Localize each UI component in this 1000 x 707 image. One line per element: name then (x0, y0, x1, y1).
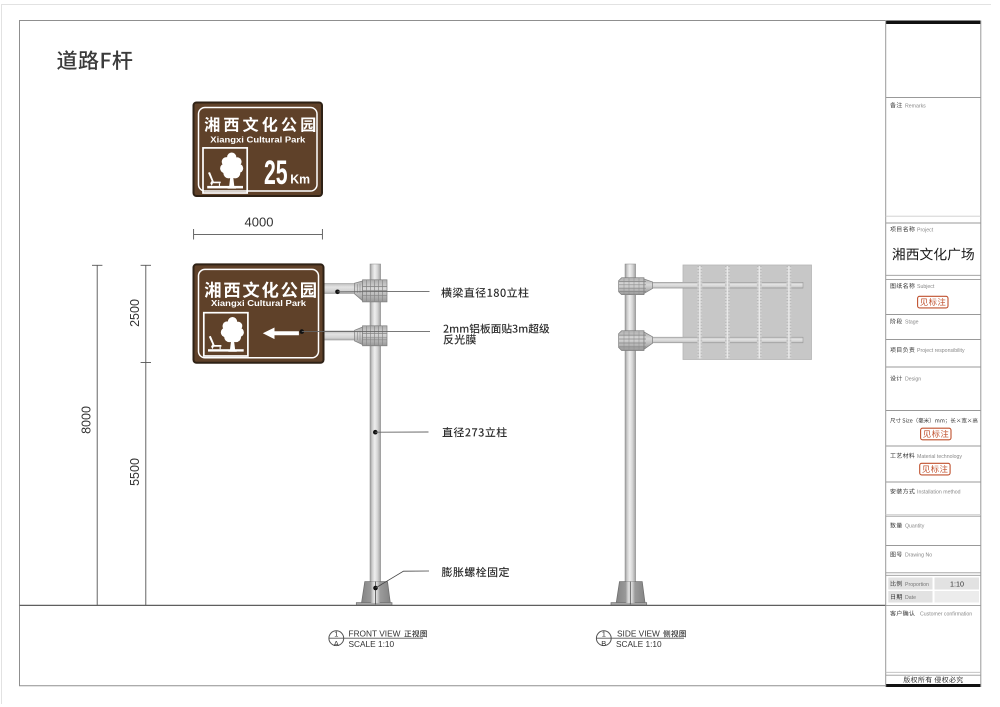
svg-text:5500: 5500 (128, 458, 142, 486)
svg-text:Material technology: Material technology (917, 454, 962, 460)
svg-text:Subject: Subject (917, 284, 935, 290)
svg-text:25: 25 (264, 154, 288, 192)
svg-text:1: 1 (602, 630, 606, 639)
svg-text:Quantity: Quantity (905, 524, 925, 530)
svg-text:Xiangxi Cultural Park: Xiangxi Cultural Park (211, 299, 307, 308)
svg-text:Installation method: Installation method (917, 490, 961, 496)
svg-text:Date: Date (905, 595, 916, 601)
svg-text:Remarks: Remarks (905, 103, 926, 109)
svg-text:SIDE VIEW: SIDE VIEW (617, 629, 660, 639)
svg-text:Customer confirmation: Customer confirmation (920, 612, 972, 618)
svg-text:1:10: 1:10 (950, 579, 964, 588)
svg-text:Proportion: Proportion (905, 582, 929, 588)
svg-text:Stage: Stage (905, 320, 919, 326)
svg-text:Design: Design (905, 377, 921, 383)
svg-text:A: A (334, 639, 339, 648)
svg-text:SCALE 1:10: SCALE 1:10 (616, 639, 662, 649)
svg-text:1: 1 (334, 630, 338, 639)
svg-text:Drawing No: Drawing No (905, 553, 932, 559)
svg-text:B: B (601, 639, 606, 648)
svg-text:FRONT VIEW: FRONT VIEW (349, 629, 401, 639)
svg-text:4000: 4000 (245, 215, 274, 230)
svg-text:Xiangxi Cultural Park: Xiangxi Cultural Park (210, 136, 306, 145)
svg-text:2500: 2500 (128, 299, 142, 327)
svg-text:SCALE 1:10: SCALE 1:10 (349, 639, 395, 649)
svg-text:8000: 8000 (80, 406, 94, 434)
svg-text:Project: Project (917, 227, 934, 233)
svg-text:Km: Km (290, 172, 310, 187)
svg-text:Project responsibility: Project responsibility (917, 348, 965, 354)
